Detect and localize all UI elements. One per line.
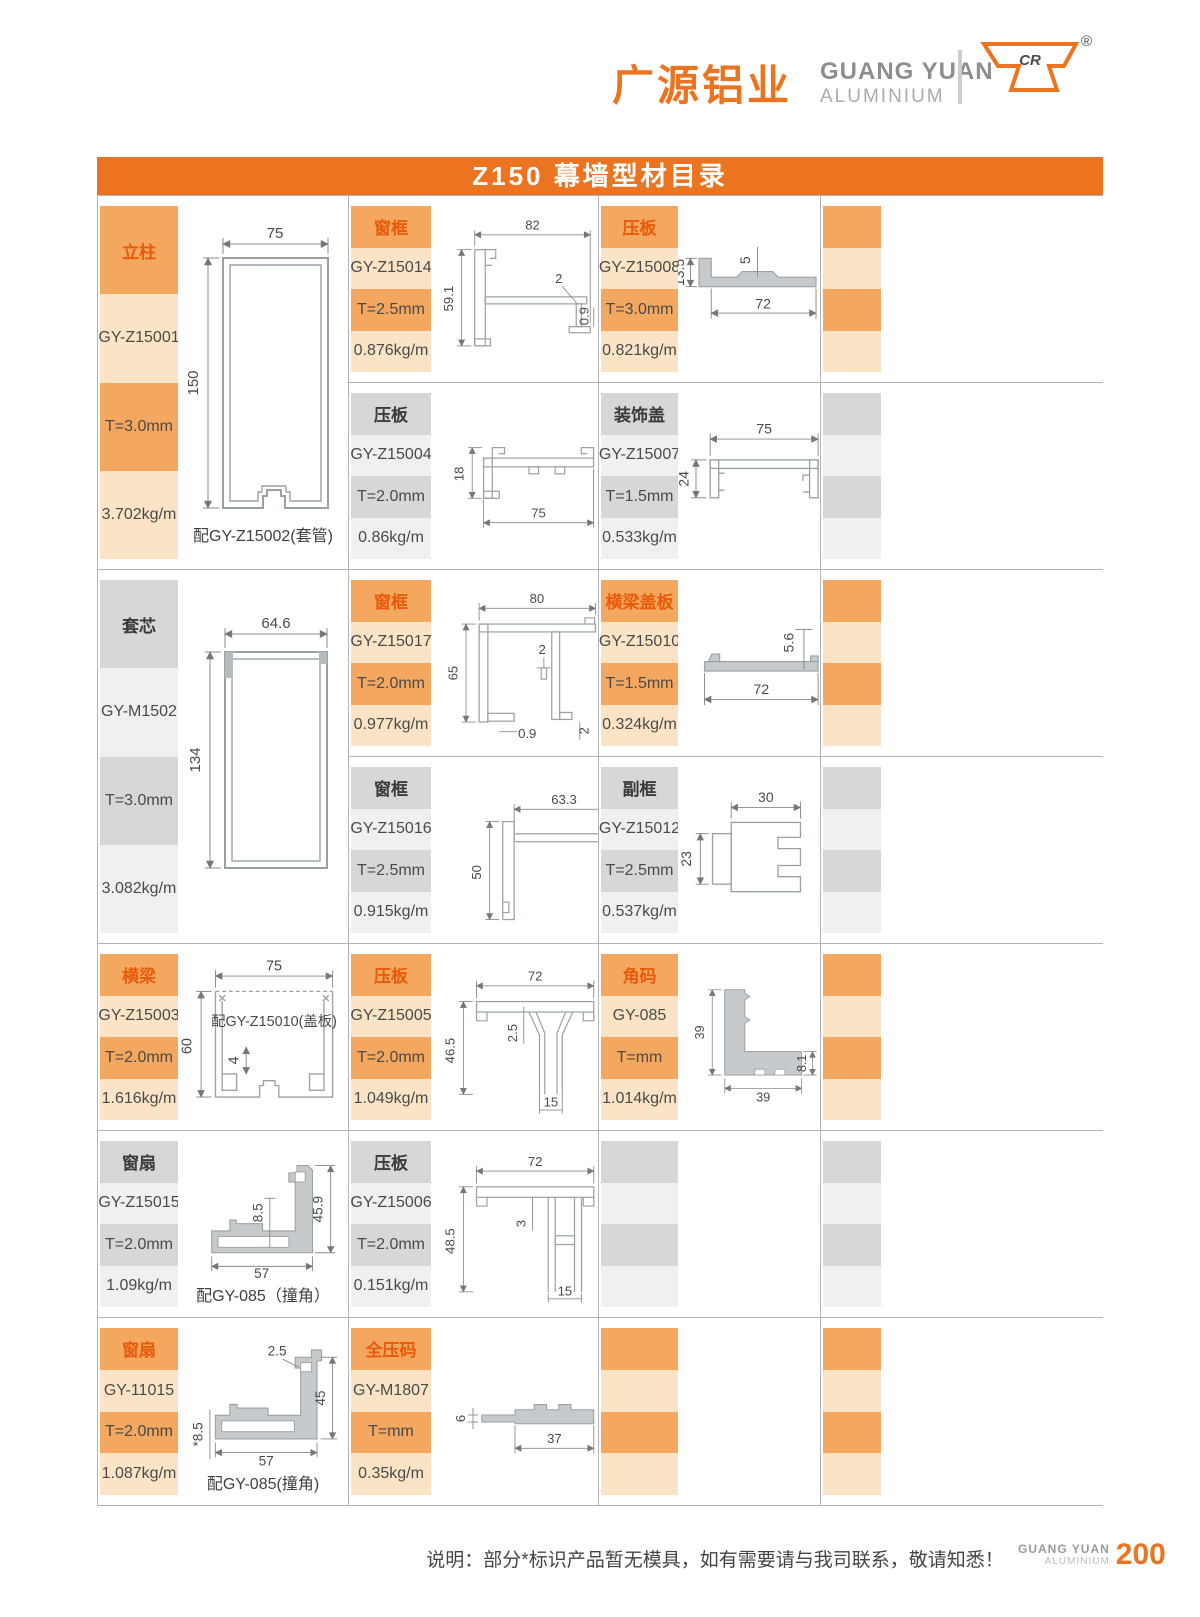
profile-drawing-gy-z15012: 30 23: [678, 757, 820, 943]
weight-label: 0.915kg/m: [351, 892, 431, 934]
brand-subtitle: ALUMINIUM: [820, 86, 945, 108]
dim-stem: 15: [557, 1283, 572, 1298]
weight-label: 1.014kg/m: [601, 1079, 678, 1121]
profile-drawing-gy-z15001: 75 150 配GY-Z15002(套管): [178, 196, 348, 569]
brand-name-chinese: 广源铝业: [612, 52, 792, 113]
product-cell-gy-m1807: 全压码 GY-M1807 T=mm 0.35kg/m 6 37: [349, 1318, 599, 1505]
thickness-label: T=1.5mm: [601, 476, 678, 518]
thickness-label: T=3.0mm: [100, 757, 178, 845]
weight-label: 0.35kg/m: [351, 1453, 431, 1495]
dim-height: 13.5: [678, 259, 688, 287]
dim-width: 57: [254, 1266, 269, 1280]
label-strip: 横梁盖板 GY-Z15010 T=1.5mm 0.324kg/m: [601, 570, 678, 756]
profile-svg: 64.6 134: [178, 612, 348, 902]
product-cell-gy-z15006: 压板 GY-Z15006 T=2.0mm 0.151kg/m 72: [349, 1131, 599, 1318]
thickness-label: T=2.0mm: [351, 1037, 431, 1079]
thickness-label: T=2.0mm: [351, 476, 431, 518]
empty-cell: [821, 1318, 1103, 1505]
weight-label: 1.049kg/m: [351, 1079, 431, 1121]
dim-width: 75: [756, 421, 772, 437]
thickness-label: T=mm: [351, 1412, 431, 1454]
dim-v: 39: [693, 1025, 707, 1039]
profile-svg: 75 150: [178, 220, 348, 520]
brand-divider: [958, 50, 962, 104]
product-cell-gy-z15001: 立柱 GY-Z15001 T=3.0mm 3.702kg/m 75 150: [98, 196, 349, 570]
label-strip: 窗框 GY-Z15014 T=2.5mm 0.876kg/m: [351, 196, 431, 382]
category-label: 窗框: [351, 767, 431, 809]
label-strip: 压板 GY-Z15006 T=2.0mm 0.151kg/m: [351, 1131, 431, 1317]
label-strip: 横梁 GY-Z15003 T=2.0mm 1.616kg/m: [100, 944, 178, 1130]
weight-label: 1.09kg/m: [100, 1266, 178, 1308]
footer-brand-subtitle: ALUMINIUM: [1018, 1556, 1110, 1567]
profile-drawing-gy-z15015: 8.5 45.9 57 配GY-085（撞角）: [178, 1131, 348, 1317]
label-strip: 窗框 GY-Z15017 T=2.0mm 0.977kg/m: [351, 570, 431, 756]
weight-label: 0.537kg/m: [601, 892, 678, 934]
thickness-label: T=2.5mm: [351, 289, 431, 331]
empty-cell: [821, 383, 1103, 570]
page-number: 200: [1116, 1540, 1166, 1570]
footer-brand: GUANG YUAN ALUMINIUM 200: [1018, 1540, 1166, 1570]
profile-svg: 13.5 5 72: [678, 230, 820, 348]
dim-height: 59.1: [440, 286, 455, 312]
thickness-label: T=2.0mm: [100, 1037, 178, 1079]
footer-brand-english: GUANG YUAN: [1018, 1543, 1110, 1556]
product-cell-gy-z15010: 横梁盖板 GY-Z15010 T=1.5mm 0.324kg/m 5.6 72: [599, 570, 821, 757]
dim-b: 0.9: [518, 726, 536, 741]
category-label: 压板: [351, 1141, 431, 1183]
product-cell-gy-z15017: 窗框 GY-Z15017 T=2.0mm 0.977kg/m: [349, 570, 599, 757]
product-cell-gy-z15007: 装饰盖 GY-Z15007 T=1.5mm 0.533kg/m 75: [599, 383, 821, 570]
profile-svg: 82 59.1 2 0.9: [431, 211, 598, 367]
dim-t: 2.5: [268, 1343, 287, 1358]
color-strip: [823, 1131, 881, 1317]
profile-drawing-gy-z15010: 5.6 72: [678, 570, 820, 756]
product-cell-gy-z15012: 副框 GY-Z15012 T=2.5mm 0.537kg/m 30 23: [599, 757, 821, 944]
category-label: 横梁: [100, 954, 178, 996]
weight-label: 0.324kg/m: [601, 705, 678, 747]
label-strip: 立柱 GY-Z15001 T=3.0mm 3.702kg/m: [100, 196, 178, 569]
color-strip: [601, 1131, 678, 1317]
model-label: GY-Z15017: [351, 622, 431, 664]
dim-width: 72: [755, 296, 771, 312]
dim-height: 23: [678, 850, 694, 866]
empty-cell: [599, 1318, 821, 1505]
weight-label: 0.977kg/m: [351, 705, 431, 747]
dim-height: 6: [453, 1415, 468, 1422]
profile-drawing-gy-z15014: 82 59.1 2 0.9: [431, 196, 598, 382]
dim-r: 2: [576, 727, 591, 734]
product-cell-gy-z15008: 压板 GY-Z15008 T=3.0mm 0.821kg/m 13.5 5: [599, 196, 821, 383]
profile-drawing-gy-m1502: 64.6 134: [178, 570, 348, 943]
profile-drawing-gy-z15017: 80 65 2 0.9 2: [431, 570, 598, 756]
model-label: GY-11015: [100, 1370, 178, 1412]
profile-svg: 72 46.5 2.5 15: [431, 956, 598, 1118]
profile-drawing-gy-z15004: 18 75: [431, 383, 598, 569]
empty-cell: [821, 944, 1103, 1131]
weight-label: 3.702kg/m: [100, 471, 178, 559]
dim-t: 3: [513, 1220, 528, 1227]
dim-t: 2.5: [504, 1024, 519, 1042]
company-logo-icon: CR ®: [978, 34, 1093, 111]
product-cell-gy-11015: 窗扇 GY-11015 T=2.0mm 1.087kg/m 2.5 45: [98, 1318, 349, 1505]
thickness-label: T=1.5mm: [601, 663, 678, 705]
weight-label: 1.616kg/m: [100, 1079, 178, 1121]
registered-mark: ®: [1081, 34, 1092, 50]
category-label: 压板: [351, 954, 431, 996]
weight-label: 0.876kg/m: [351, 331, 431, 373]
dim-t: 2: [538, 642, 545, 657]
thickness-label: T=mm: [601, 1037, 678, 1079]
dim-height: 60: [179, 1038, 195, 1054]
model-label: GY-Z15005: [351, 996, 431, 1038]
model-label: GY-Z15015: [100, 1183, 178, 1225]
profile-svg: 30 23: [678, 785, 820, 916]
dim-height: 18: [451, 467, 466, 482]
model-label: GY-Z15016: [351, 809, 431, 851]
color-strip: [823, 757, 881, 943]
model-label: GY-Z15003: [100, 996, 178, 1038]
profile-drawing-gy-085: 39 39 8.1: [678, 944, 820, 1130]
model-label: GY-Z15010: [601, 622, 678, 664]
profile-svg: 80 65 2 0.9 2: [431, 582, 598, 744]
empty-cell: [821, 570, 1103, 757]
empty-cell: [821, 1131, 1103, 1318]
label-strip: 窗扇 GY-Z15015 T=2.0mm 1.09kg/m: [100, 1131, 178, 1317]
label-strip: 装饰盖 GY-Z15007 T=1.5mm 0.533kg/m: [601, 383, 678, 569]
dim-t: 2: [555, 271, 562, 286]
label-strip: 副框 GY-Z15012 T=2.5mm 0.537kg/m: [601, 757, 678, 943]
label-strip: 角码 GY-085 T=mm 1.014kg/m: [601, 944, 678, 1130]
dim-height: 65: [445, 666, 460, 681]
model-label: GY-M1807: [351, 1370, 431, 1412]
model-label: GY-Z15014: [351, 248, 431, 290]
profile-drawing-gy-z15016: 63.3 50 2: [431, 757, 598, 943]
footer-note: 说明：部分*标识产品暂无模具，如有需要请与我司联系，敬请知悉！: [97, 1545, 1103, 1572]
dim-width: 63.3: [551, 792, 577, 807]
thickness-label: T=3.0mm: [100, 383, 178, 471]
model-label: GY-085: [601, 996, 678, 1038]
category-label: 副框: [601, 767, 678, 809]
model-label: GY-Z15007: [601, 435, 678, 477]
category-label: 压板: [351, 393, 431, 435]
weight-label: 0.821kg/m: [601, 331, 678, 373]
dim-height: 45.9: [310, 1196, 325, 1223]
category-label: 角码: [601, 954, 678, 996]
label-strip: 压板 GY-Z15008 T=3.0mm 0.821kg/m: [601, 196, 678, 382]
model-label: GY-Z15006: [351, 1183, 431, 1225]
profile-svg: 39 39 8.1: [678, 968, 820, 1106]
color-strip: [823, 383, 881, 569]
brand-name-english: GUANG YUAN: [820, 58, 994, 86]
profile-svg: 2.5 45 57 *8.5: [179, 1330, 347, 1468]
profile-svg: 8.5 45.9 57: [179, 1142, 347, 1280]
category-label: 窗扇: [100, 1141, 178, 1183]
dim-height: 48.5: [442, 1228, 457, 1254]
empty-cell: [821, 757, 1103, 944]
dim-height: 5.6: [781, 633, 797, 653]
dim-r: 0.9: [576, 307, 591, 325]
dim-width: 72: [527, 969, 542, 984]
empty-cell: [599, 1131, 821, 1318]
product-cell-gy-z15015: 窗扇 GY-Z15015 T=2.0mm 1.09kg/m 8.5 45.9: [98, 1131, 349, 1318]
category-label: 窗框: [351, 580, 431, 622]
category-label: 窗扇: [100, 1328, 178, 1370]
profile-drawing-gy-m1807: 6 37: [431, 1318, 598, 1505]
dim-width: 80: [529, 591, 544, 606]
label-strip: 套芯 GY-M1502 T=3.0mm 3.082kg/m: [100, 570, 178, 943]
product-cell-gy-z15003: 横梁 GY-Z15003 T=2.0mm 1.616kg/m 4 配GY-Z15…: [98, 944, 349, 1131]
dim-height: 50: [468, 865, 483, 880]
profile-svg: 5.6 72: [678, 599, 820, 727]
pairing-note: 配GY-085（撞角）: [196, 1282, 330, 1306]
category-label: 窗框: [351, 206, 431, 248]
dim-width: 75: [267, 225, 284, 242]
dim-height: 150: [185, 370, 202, 395]
dim-width: 75: [266, 958, 282, 974]
weight-label: 1.087kg/m: [100, 1453, 178, 1495]
profile-svg: 6 37: [431, 1359, 598, 1464]
catalog-grid: 立柱 GY-Z15001 T=3.0mm 3.702kg/m 75 150: [97, 195, 1103, 1506]
thickness-label: T=3.0mm: [601, 289, 678, 331]
label-strip: 窗扇 GY-11015 T=2.0mm 1.087kg/m: [100, 1318, 178, 1505]
profile-drawing-gy-z15008: 13.5 5 72: [678, 196, 820, 382]
dim-slot: 4: [227, 1056, 243, 1064]
category-label: 压板: [601, 206, 678, 248]
weight-label: 0.533kg/m: [601, 518, 678, 560]
dim-height: 46.5: [442, 1038, 457, 1064]
profile-svg: 72 48.5 3 15: [431, 1143, 598, 1305]
dim-height: 45: [313, 1390, 328, 1405]
label-strip: 全压码 GY-M1807 T=mm 0.35kg/m: [351, 1318, 431, 1505]
weight-label: 0.151kg/m: [351, 1266, 431, 1308]
color-strip: [823, 196, 881, 382]
weight-label: 3.082kg/m: [100, 845, 178, 933]
profile-drawing-gy-11015: 2.5 45 57 *8.5 配GY-085(撞角): [178, 1318, 348, 1505]
profile-svg: 18 75: [431, 404, 598, 548]
empty-cell: [821, 196, 1103, 383]
dim-t: 8.5: [251, 1203, 266, 1222]
label-strip: 压板 GY-Z15004 T=2.0mm 0.86kg/m: [351, 383, 431, 569]
profile-svg: 4 配GY-Z15010(盖板) 75 60: [179, 951, 347, 1124]
label-strip: 压板 GY-Z15005 T=2.0mm 1.049kg/m: [351, 944, 431, 1130]
category-label: 装饰盖: [601, 393, 678, 435]
catalog-page: 广源铝业 GUANG YUAN ALUMINIUM CR ® Z150 幕墙型材…: [0, 0, 1200, 1617]
dim-mid: 5: [738, 256, 754, 264]
pairing-note: 配GY-Z15002(套管): [193, 522, 333, 546]
dim-width: 57: [259, 1453, 274, 1468]
profile-svg: 63.3 50 2: [431, 769, 598, 931]
category-label: 套芯: [100, 580, 178, 668]
product-cell-gy-z15004: 压板 GY-Z15004 T=2.0mm 0.86kg/m 18: [349, 383, 599, 570]
dim-l: *8.5: [191, 1422, 206, 1446]
category-label: 立柱: [100, 206, 178, 294]
thickness-label: T=2.5mm: [351, 850, 431, 892]
product-cell-gy-z15016: 窗框 GY-Z15016 T=2.5mm 0.915kg/m 63.3: [349, 757, 599, 944]
weight-label: 0.86kg/m: [351, 518, 431, 560]
dim-width: 72: [753, 682, 769, 698]
dim-t: 8.1: [795, 1055, 809, 1072]
model-label: GY-Z15012: [601, 809, 678, 851]
label-strip: 窗框 GY-Z15016 T=2.5mm 0.915kg/m: [351, 757, 431, 943]
color-strip: [823, 1318, 881, 1505]
page-title: Z150 幕墙型材目录: [97, 157, 1103, 195]
dim-width: 30: [758, 788, 774, 804]
product-cell-gy-z15005: 压板 GY-Z15005 T=2.0mm 1.049kg/m 72: [349, 944, 599, 1131]
model-label: GY-Z15008: [601, 248, 678, 290]
pairing-note: 配GY-085(撞角): [207, 1470, 319, 1494]
dim-height: 134: [187, 747, 204, 772]
thickness-label: T=2.5mm: [601, 850, 678, 892]
profile-drawing-gy-z15007: 75 24: [678, 383, 820, 569]
logo-letters: CR: [1019, 52, 1041, 69]
thickness-label: T=2.0mm: [100, 1224, 178, 1266]
dim-w: 39: [756, 1091, 770, 1105]
model-label: GY-M1502: [100, 668, 178, 756]
dim-width: 75: [531, 505, 546, 520]
product-cell-gy-z15014: 窗框 GY-Z15014 T=2.5mm 0.876kg/m 82: [349, 196, 599, 383]
category-label: 横梁盖板: [601, 580, 678, 622]
dim-height: 24: [678, 471, 692, 487]
pairing-note-inline: 配GY-Z15010(盖板): [211, 1012, 337, 1029]
product-cell-gy-085: 角码 GY-085 T=mm 1.014kg/m 39 39: [599, 944, 821, 1131]
color-strip: [823, 944, 881, 1130]
product-cell-gy-m1502: 套芯 GY-M1502 T=3.0mm 3.082kg/m 64.6: [98, 570, 349, 944]
dim-width: 64.6: [261, 615, 290, 632]
color-strip: [601, 1318, 678, 1505]
profile-drawing-gy-z15006: 72 48.5 3 15: [431, 1131, 598, 1317]
model-label: GY-Z15001: [100, 294, 178, 382]
thickness-label: T=2.0mm: [351, 663, 431, 705]
thickness-label: T=2.0mm: [100, 1412, 178, 1454]
dim-width: 72: [527, 1154, 542, 1169]
profile-svg: 75 24: [678, 405, 820, 547]
profile-drawing-gy-z15005: 72 46.5 2.5 15: [431, 944, 598, 1130]
profile-drawing-gy-z15003: 4 配GY-Z15010(盖板) 75 60: [178, 944, 348, 1130]
category-label: 全压码: [351, 1328, 431, 1370]
dim-width: 37: [547, 1431, 562, 1446]
thickness-label: T=2.0mm: [351, 1224, 431, 1266]
dim-stem: 15: [543, 1095, 558, 1110]
model-label: GY-Z15004: [351, 435, 431, 477]
dim-width: 82: [525, 218, 540, 233]
color-strip: [823, 570, 881, 756]
